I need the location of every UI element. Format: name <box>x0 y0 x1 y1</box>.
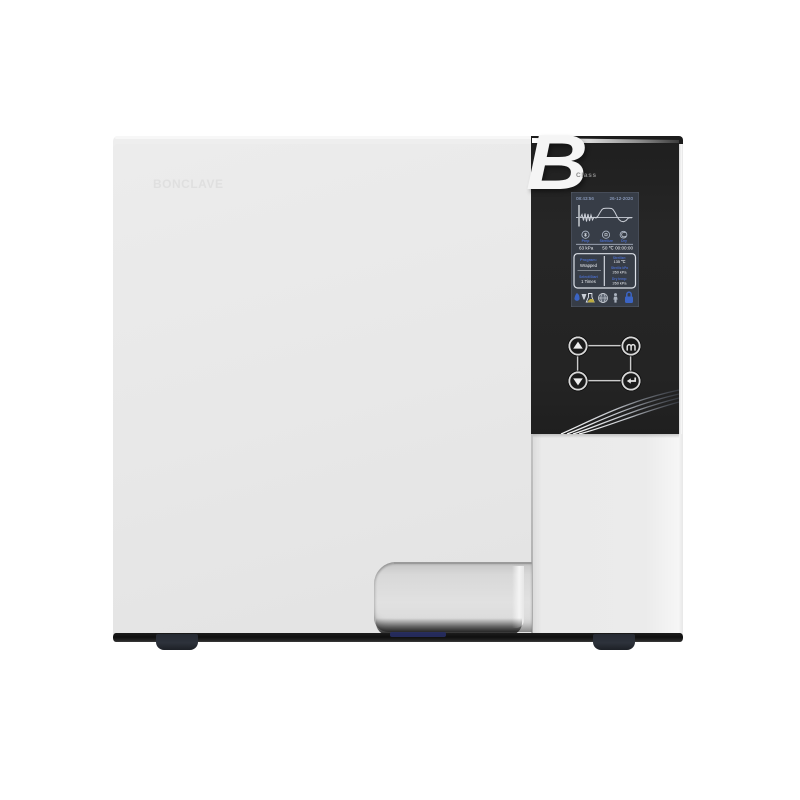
svg-text:Sterilize:: Sterilize: <box>613 256 626 260</box>
svg-text:Dry temp:: Dry temp: <box>612 277 627 281</box>
svg-text:Wrapped: Wrapped <box>580 263 598 268</box>
svg-text:Sterilize: Sterilize <box>600 239 613 243</box>
svg-text:26-12-2020: 26-12-2020 <box>610 196 634 201</box>
svg-text:Steriliz kPa: Steriliz kPa <box>611 266 628 270</box>
svg-text:135 ℃: 135 ℃ <box>614 260 626 264</box>
svg-text:260 kPa: 260 kPa <box>613 271 628 275</box>
svg-text:08:43:56: 08:43:56 <box>576 196 594 201</box>
svg-text:Prep: Prep <box>582 239 590 243</box>
svg-text:50 ℃ 00:00:00: 50 ℃ 00:00:00 <box>602 246 633 251</box>
svg-text:63 kPa: 63 kPa <box>579 246 594 251</box>
svg-text:260 kPa: 260 kPa <box>613 282 628 286</box>
svg-text:1 Times: 1 Times <box>581 279 596 284</box>
svg-text:Dry: Dry <box>621 239 627 243</box>
svg-text:Program:: Program: <box>580 258 597 262</box>
